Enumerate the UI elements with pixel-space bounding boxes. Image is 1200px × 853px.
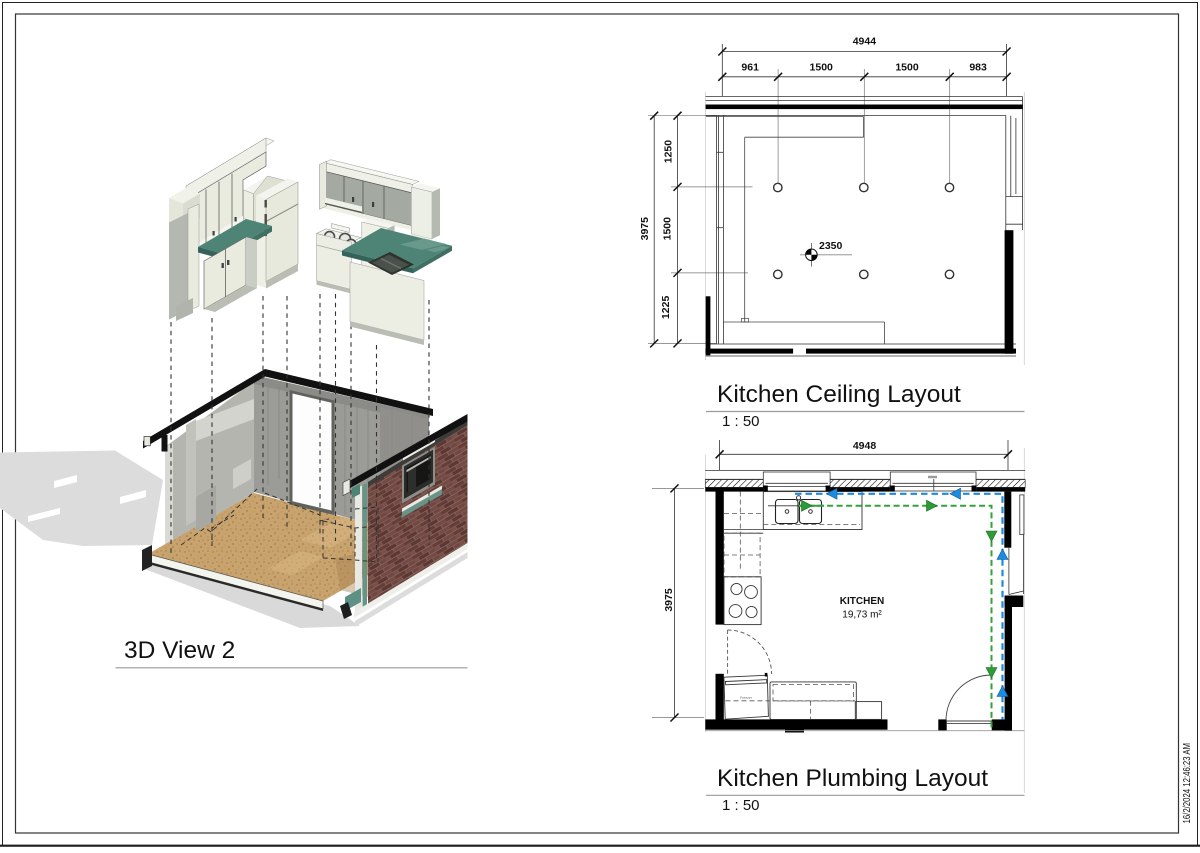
svg-text:1225: 1225 <box>660 296 672 320</box>
svg-text:1250: 1250 <box>662 140 674 164</box>
svg-text:3975: 3975 <box>639 217 651 241</box>
svg-text:1500: 1500 <box>661 217 673 241</box>
svg-text:4948: 4948 <box>853 440 877 452</box>
svg-text:961: 961 <box>741 61 759 73</box>
svg-text:3975: 3975 <box>663 588 675 612</box>
svg-text:983: 983 <box>969 61 987 73</box>
svg-text:Freezer: Freezer <box>740 696 753 700</box>
svg-text:3D View 2: 3D View 2 <box>124 637 235 664</box>
svg-text:4944: 4944 <box>853 36 877 48</box>
svg-text:2350: 2350 <box>819 240 843 252</box>
svg-text:KITCHEN: KITCHEN <box>840 596 884 607</box>
svg-text:1 : 50: 1 : 50 <box>722 797 760 814</box>
svg-text:1 : 50: 1 : 50 <box>722 413 760 430</box>
svg-text:1500: 1500 <box>810 61 834 73</box>
svg-text:16/2/2024 12:46:23 AM: 16/2/2024 12:46:23 AM <box>1181 743 1193 824</box>
svg-text:1500: 1500 <box>895 61 919 73</box>
svg-text:Kitchen Plumbing Layout: Kitchen Plumbing Layout <box>717 765 988 792</box>
svg-text:19,73 m²: 19,73 m² <box>842 609 882 620</box>
svg-text:Kitchen Ceiling Layout: Kitchen Ceiling Layout <box>717 381 961 408</box>
